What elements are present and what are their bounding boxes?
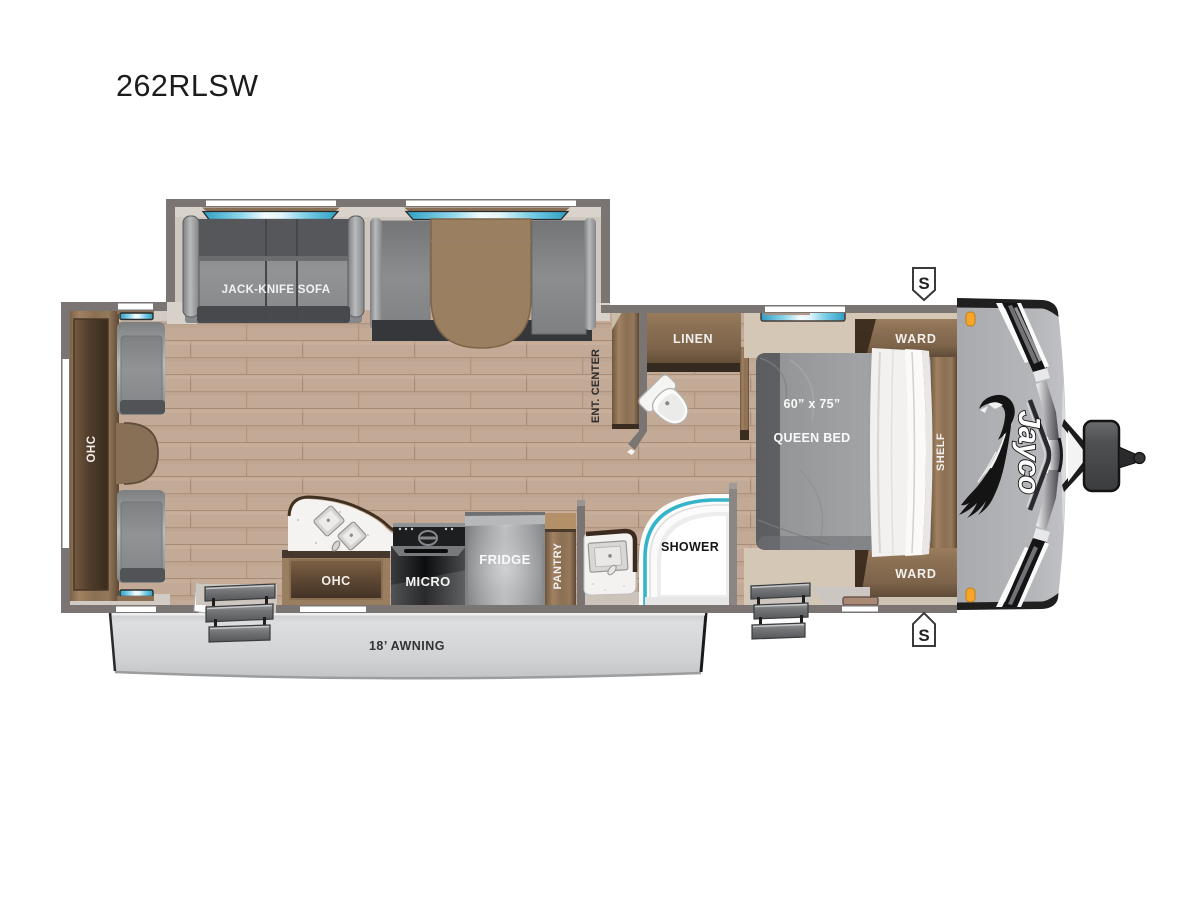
svg-text:OHC: OHC — [86, 435, 98, 462]
svg-text:S: S — [918, 274, 929, 293]
svg-text:JACK-KNIFE SOFA: JACK-KNIFE SOFA — [222, 284, 331, 296]
svg-text:PANTRY: PANTRY — [552, 542, 564, 589]
svg-text:WARD: WARD — [895, 567, 936, 581]
svg-text:QUEEN BED: QUEEN BED — [773, 431, 850, 445]
svg-text:WARD: WARD — [895, 332, 936, 346]
svg-text:MICRO: MICRO — [405, 574, 450, 589]
svg-text:ENT. CENTER: ENT. CENTER — [590, 349, 602, 423]
svg-text:SHELF: SHELF — [935, 433, 947, 471]
svg-text:262RLSW: 262RLSW — [116, 69, 259, 103]
svg-text:60” x 75”: 60” x 75” — [784, 397, 841, 411]
svg-text:FRIDGE: FRIDGE — [479, 552, 531, 567]
svg-text:Jayco: Jayco — [1012, 411, 1047, 494]
svg-text:OHC: OHC — [321, 574, 350, 588]
svg-text:18’ AWNING: 18’ AWNING — [369, 639, 445, 653]
svg-text:S: S — [918, 626, 929, 645]
svg-text:LINEN: LINEN — [673, 332, 713, 346]
svg-text:SHOWER: SHOWER — [661, 540, 719, 554]
